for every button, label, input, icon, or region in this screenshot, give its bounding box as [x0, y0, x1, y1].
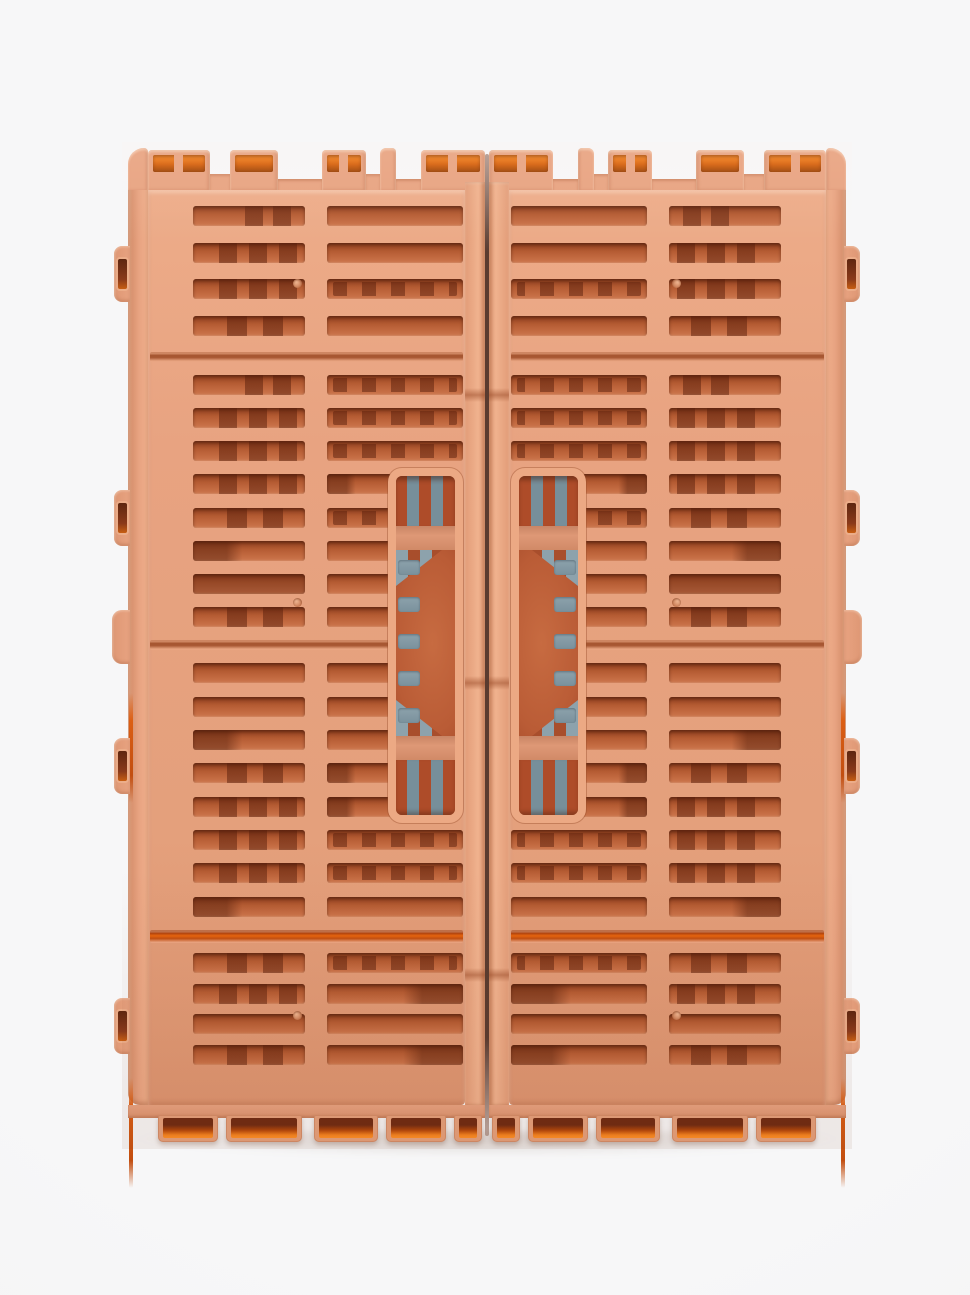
- castellated-top-edge: [489, 148, 846, 190]
- vent-slot: [327, 316, 463, 336]
- vent-slot: [669, 574, 781, 594]
- vent-slot: [511, 984, 647, 1004]
- floor-seen-through-slot: [398, 634, 420, 649]
- fold-groove: [511, 930, 824, 943]
- handle-grip-bar: [394, 736, 457, 760]
- handle-cutout: [511, 468, 586, 823]
- latch-tab: [114, 490, 130, 546]
- floor-seen-through-slot: [398, 560, 420, 575]
- slot-row: [509, 1014, 826, 1034]
- vent-slot: [511, 863, 647, 883]
- vent-slot: [511, 441, 647, 461]
- tab-mullion: [448, 154, 457, 173]
- seam-rail: [465, 182, 485, 1105]
- vent-slot: [669, 797, 781, 817]
- handle-grip-bar: [517, 736, 580, 760]
- latch-tab: [844, 490, 860, 546]
- tab-mullion: [626, 154, 635, 173]
- molding-dimple: [672, 1011, 681, 1020]
- stacking-foot: [672, 1115, 748, 1142]
- vent-slot: [327, 897, 463, 917]
- slot-row: [148, 863, 465, 883]
- vent-slot: [511, 206, 647, 226]
- orange-tab-recess: [153, 155, 205, 172]
- vent-slot: [669, 697, 781, 717]
- bottom-edge: [128, 1105, 485, 1143]
- vent-slot: [511, 897, 647, 917]
- vent-slot: [193, 408, 305, 428]
- slot-row: [509, 279, 826, 299]
- hinge-knuckle: [844, 610, 862, 664]
- molding-dimple: [293, 279, 302, 288]
- slot-row: [148, 1045, 465, 1065]
- vent-slot: [327, 574, 392, 594]
- vent-slot: [327, 730, 392, 750]
- panel-bottom-frame: [148, 1075, 465, 1103]
- vent-slot: [193, 279, 305, 299]
- vent-slot: [193, 697, 305, 717]
- vent-slot: [327, 1014, 463, 1034]
- vent-slot: [193, 474, 305, 494]
- vent-slot: [669, 474, 781, 494]
- vent-slot: [511, 243, 647, 263]
- stacking-foot: [756, 1115, 816, 1142]
- panel-section: [509, 190, 826, 352]
- edge-tab: [148, 150, 210, 190]
- vent-slot: [327, 697, 392, 717]
- latch-tab: [844, 998, 860, 1054]
- vent-slot: [669, 863, 781, 883]
- vent-slot: [669, 243, 781, 263]
- molding-dimple: [672, 598, 681, 607]
- orange-tab-recess: [613, 155, 647, 172]
- seam-rail: [489, 182, 509, 1105]
- orange-tab-recess: [235, 155, 273, 172]
- slot-row: [148, 1014, 465, 1034]
- stacking-foot: [158, 1115, 218, 1142]
- edge-post: [128, 148, 148, 190]
- slot-row: [148, 243, 465, 263]
- edge-deep: [396, 179, 421, 190]
- slot-row: [148, 375, 465, 395]
- latch-tab: [114, 738, 130, 794]
- vent-slot: [669, 830, 781, 850]
- vent-slot: [193, 541, 305, 561]
- vent-slot: [669, 279, 781, 299]
- latch-tab: [114, 998, 130, 1054]
- slot-row: [509, 441, 826, 461]
- panel-section: [148, 943, 465, 1075]
- stacking-foot: [492, 1115, 520, 1142]
- vent-slot: [511, 1045, 647, 1065]
- molding-dimple: [672, 279, 681, 288]
- vent-slot: [511, 953, 647, 973]
- edge-gap: [210, 174, 230, 190]
- vent-slot: [327, 243, 463, 263]
- tab-mullion: [791, 154, 800, 173]
- folded-crate: [128, 148, 846, 1143]
- vent-slot: [327, 863, 463, 883]
- vent-slot: [511, 830, 647, 850]
- bottom-edge: [489, 1105, 846, 1143]
- handle-opening: [396, 550, 455, 736]
- stacking-foot: [226, 1115, 302, 1142]
- vent-slot: [669, 984, 781, 1004]
- vent-slot: [193, 1014, 305, 1034]
- vent-slot: [193, 897, 305, 917]
- vent-slot: [669, 441, 781, 461]
- slot-row: [148, 897, 465, 917]
- vent-slot: [193, 863, 305, 883]
- slot-row: [148, 830, 465, 850]
- vent-slot: [669, 408, 781, 428]
- vent-slot: [582, 474, 647, 494]
- slot-row: [148, 984, 465, 1004]
- slot-row: [148, 953, 465, 973]
- slot-row: [509, 863, 826, 883]
- castellated-top-edge: [128, 148, 485, 190]
- slot-row: [148, 279, 465, 299]
- fold-notch: [489, 968, 509, 982]
- handle-underlayer-stripes: [395, 760, 456, 815]
- edge-gap: [594, 174, 608, 190]
- vent-slot: [511, 375, 647, 395]
- vent-slot: [669, 541, 781, 561]
- product-photo-background: [0, 0, 970, 1295]
- stacking-foot: [596, 1115, 660, 1142]
- center-seam: [485, 154, 489, 1136]
- vent-slot: [582, 508, 647, 528]
- vent-slot: [193, 1045, 305, 1065]
- orange-tab-recess: [327, 155, 361, 172]
- stacking-foot: [314, 1115, 378, 1142]
- vent-slot: [193, 316, 305, 336]
- vent-slot: [669, 1045, 781, 1065]
- vent-slot: [327, 830, 463, 850]
- edge-tab: [608, 150, 652, 190]
- hinge-knuckle: [112, 610, 130, 664]
- handle-underlayer-stripes: [395, 476, 456, 526]
- vent-slot: [193, 663, 305, 683]
- floor-seen-through-slot: [554, 597, 576, 612]
- slot-row: [148, 408, 465, 428]
- orange-tab-recess: [426, 155, 480, 172]
- handle-cutout: [388, 468, 463, 823]
- vent-slot: [193, 830, 305, 850]
- slot-row: [148, 441, 465, 461]
- vent-slot: [327, 408, 463, 428]
- fold-groove: [511, 352, 824, 362]
- vent-slot: [193, 441, 305, 461]
- latch-tab: [114, 246, 130, 302]
- vent-slot: [327, 1045, 463, 1065]
- vent-slot: [327, 375, 463, 395]
- slot-row: [509, 897, 826, 917]
- edge-deep: [652, 179, 696, 190]
- vent-slot: [669, 375, 781, 395]
- vent-slot: [193, 953, 305, 973]
- edge-gap: [366, 174, 380, 190]
- vent-slot: [582, 797, 647, 817]
- latch-tab: [844, 738, 860, 794]
- fold-groove: [150, 352, 463, 362]
- handle-grip-bar: [394, 526, 457, 550]
- vent-slot: [193, 508, 305, 528]
- slot-row: [148, 206, 465, 226]
- slot-row: [509, 316, 826, 336]
- vent-slot: [327, 508, 392, 528]
- crate-right-half: [489, 148, 846, 1143]
- edge-tab: [322, 150, 366, 190]
- vent-slot: [193, 797, 305, 817]
- vent-slot: [327, 441, 463, 461]
- fold-groove: [150, 930, 463, 943]
- floor-seen-through-slot: [554, 634, 576, 649]
- slot-row: [148, 316, 465, 336]
- vent-slot: [511, 279, 647, 299]
- orange-tab-recess: [701, 155, 739, 172]
- vent-slot: [582, 763, 647, 783]
- edge-deep: [278, 179, 322, 190]
- latch-tab: [844, 246, 860, 302]
- molding-dimple: [293, 598, 302, 607]
- vent-slot: [582, 607, 647, 627]
- floor-seen-through-slot: [398, 597, 420, 612]
- vent-slot: [327, 763, 392, 783]
- stacking-foot: [454, 1115, 482, 1142]
- vent-slot: [193, 763, 305, 783]
- vent-slot: [669, 663, 781, 683]
- vent-slot: [669, 508, 781, 528]
- edge-tab: [230, 150, 278, 190]
- vent-slot: [582, 730, 647, 750]
- vent-slot: [327, 541, 392, 561]
- vent-slot: [327, 206, 463, 226]
- molding-dimple: [293, 1011, 302, 1020]
- edge-post: [380, 148, 396, 190]
- panel-section: [148, 190, 465, 352]
- vent-slot: [669, 730, 781, 750]
- slot-row: [509, 1045, 826, 1065]
- vent-slot: [327, 953, 463, 973]
- fold-notch: [465, 968, 485, 982]
- vent-slot: [193, 984, 305, 1004]
- floor-seen-through-slot: [554, 671, 576, 686]
- crate-left-half: [128, 148, 485, 1143]
- vent-slot: [327, 797, 392, 817]
- tab-mullion: [517, 154, 526, 173]
- vent-slot: [327, 474, 392, 494]
- vent-slot: [669, 316, 781, 336]
- orange-tab-recess: [769, 155, 821, 172]
- vent-slot: [511, 1014, 647, 1034]
- vent-slot: [669, 206, 781, 226]
- fold-notch: [489, 676, 509, 690]
- handle-grip-bar: [517, 526, 580, 550]
- vent-slot: [193, 206, 305, 226]
- panel-bottom-frame: [509, 1075, 826, 1103]
- tab-mullion: [339, 154, 348, 173]
- vent-slot: [582, 574, 647, 594]
- slot-row: [509, 375, 826, 395]
- vent-slot: [193, 375, 305, 395]
- handle-underlayer-stripes: [518, 760, 579, 815]
- floor-seen-through-slot: [398, 671, 420, 686]
- side-wall-rail: [128, 182, 148, 1105]
- vent-slot: [669, 763, 781, 783]
- vent-slot: [669, 953, 781, 973]
- slot-row: [509, 953, 826, 973]
- slot-row: [509, 206, 826, 226]
- fold-notch: [465, 676, 485, 690]
- floor-seen-through-slot: [554, 560, 576, 575]
- stacking-foot: [386, 1115, 446, 1142]
- vent-slot: [193, 730, 305, 750]
- handle-opening: [519, 550, 578, 736]
- edge-gap: [744, 174, 764, 190]
- vent-slot: [327, 607, 392, 627]
- vent-slot: [193, 243, 305, 263]
- vent-slot: [511, 316, 647, 336]
- vent-slot: [582, 697, 647, 717]
- fold-notch: [489, 388, 509, 402]
- orange-tab-recess: [494, 155, 548, 172]
- vent-slot: [669, 1014, 781, 1034]
- side-wall-rail: [826, 182, 846, 1105]
- edge-tab: [696, 150, 744, 190]
- slot-row: [509, 984, 826, 1004]
- floor-seen-through-slot: [398, 708, 420, 723]
- stacking-foot: [528, 1115, 588, 1142]
- edge-tab: [764, 150, 826, 190]
- vent-slot: [193, 574, 305, 594]
- vent-slot: [193, 607, 305, 627]
- vent-slot: [327, 984, 463, 1004]
- vent-slot: [669, 607, 781, 627]
- slot-row: [509, 408, 826, 428]
- slot-row: [509, 243, 826, 263]
- edge-post: [826, 148, 846, 190]
- tab-mullion: [174, 154, 183, 173]
- vent-slot: [327, 279, 463, 299]
- edge-post: [578, 148, 594, 190]
- vent-slot: [582, 663, 647, 683]
- handle-underlayer-stripes: [518, 476, 579, 526]
- floor-seen-through-slot: [554, 708, 576, 723]
- edge-deep: [553, 179, 578, 190]
- vent-slot: [582, 541, 647, 561]
- panel-section: [509, 943, 826, 1075]
- vent-slot: [511, 408, 647, 428]
- fold-notch: [465, 388, 485, 402]
- slot-row: [509, 830, 826, 850]
- vent-slot: [669, 897, 781, 917]
- vent-slot: [327, 663, 392, 683]
